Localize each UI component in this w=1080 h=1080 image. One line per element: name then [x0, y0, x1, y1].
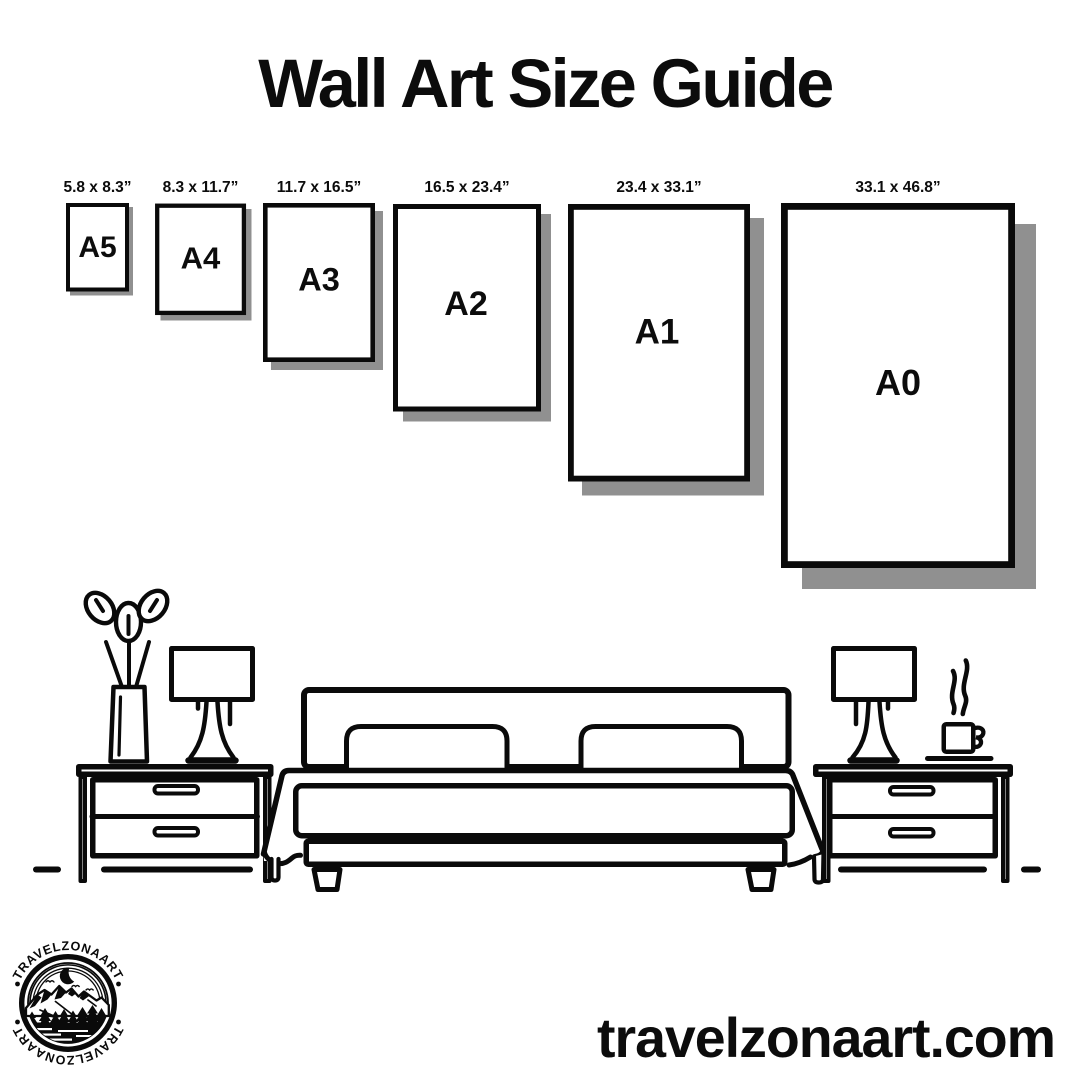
svg-text:A4: A4 — [181, 241, 221, 276]
svg-text:23.4 x 33.1”: 23.4 x 33.1” — [616, 179, 701, 196]
svg-text:33.1 x 46.8”: 33.1 x 46.8” — [855, 179, 940, 196]
svg-text:A1: A1 — [635, 313, 680, 352]
svg-text:A0: A0 — [875, 362, 921, 403]
svg-text:A3: A3 — [298, 262, 340, 298]
svg-text:8.3 x 11.7”: 8.3 x 11.7” — [163, 179, 239, 196]
svg-text:A2: A2 — [444, 285, 487, 323]
svg-text:16.5 x 23.4”: 16.5 x 23.4” — [424, 179, 509, 196]
svg-text:11.7 x 16.5”: 11.7 x 16.5” — [277, 179, 361, 196]
svg-text:5.8 x 8.3”: 5.8 x 8.3” — [63, 179, 131, 196]
svg-text:travelzonaart.com: travelzonaart.com — [597, 1007, 1055, 1069]
svg-text:Wall Art Size Guide: Wall Art Size Guide — [258, 45, 832, 122]
svg-text:A5: A5 — [78, 231, 116, 264]
